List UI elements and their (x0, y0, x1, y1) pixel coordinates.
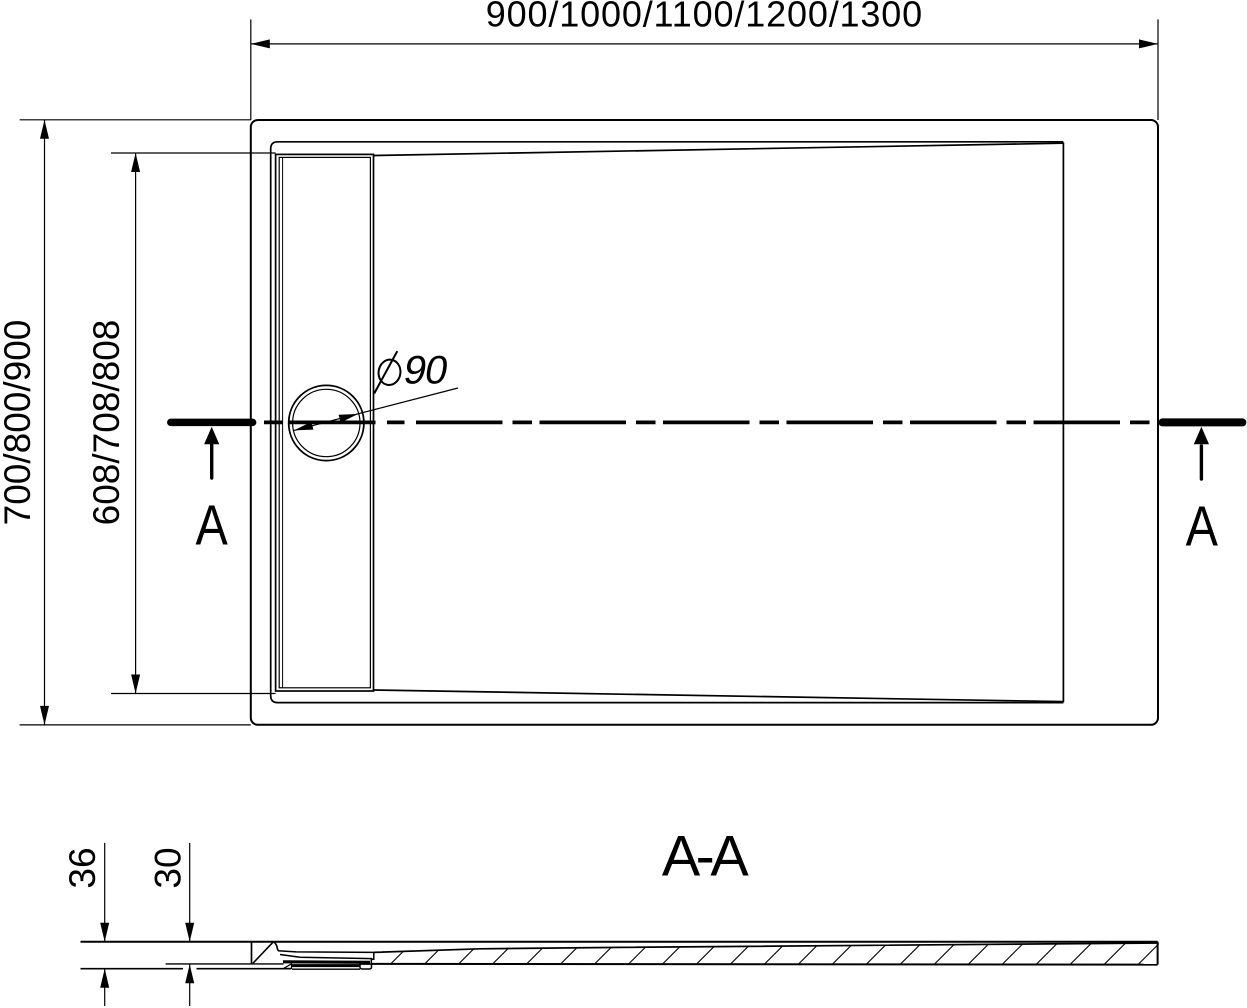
svg-text:36: 36 (62, 847, 103, 888)
svg-text:A: A (195, 494, 228, 558)
svg-text:A: A (1186, 495, 1219, 559)
svg-text:90: 90 (400, 348, 450, 393)
svg-text:30: 30 (147, 847, 188, 888)
svg-text:608/708/808: 608/708/808 (86, 320, 127, 526)
svg-text:900/1000/1100/1200/1300: 900/1000/1100/1200/1300 (486, 0, 923, 35)
svg-text:A-A: A-A (662, 825, 750, 889)
svg-text:700/800/900: 700/800/900 (0, 320, 38, 526)
